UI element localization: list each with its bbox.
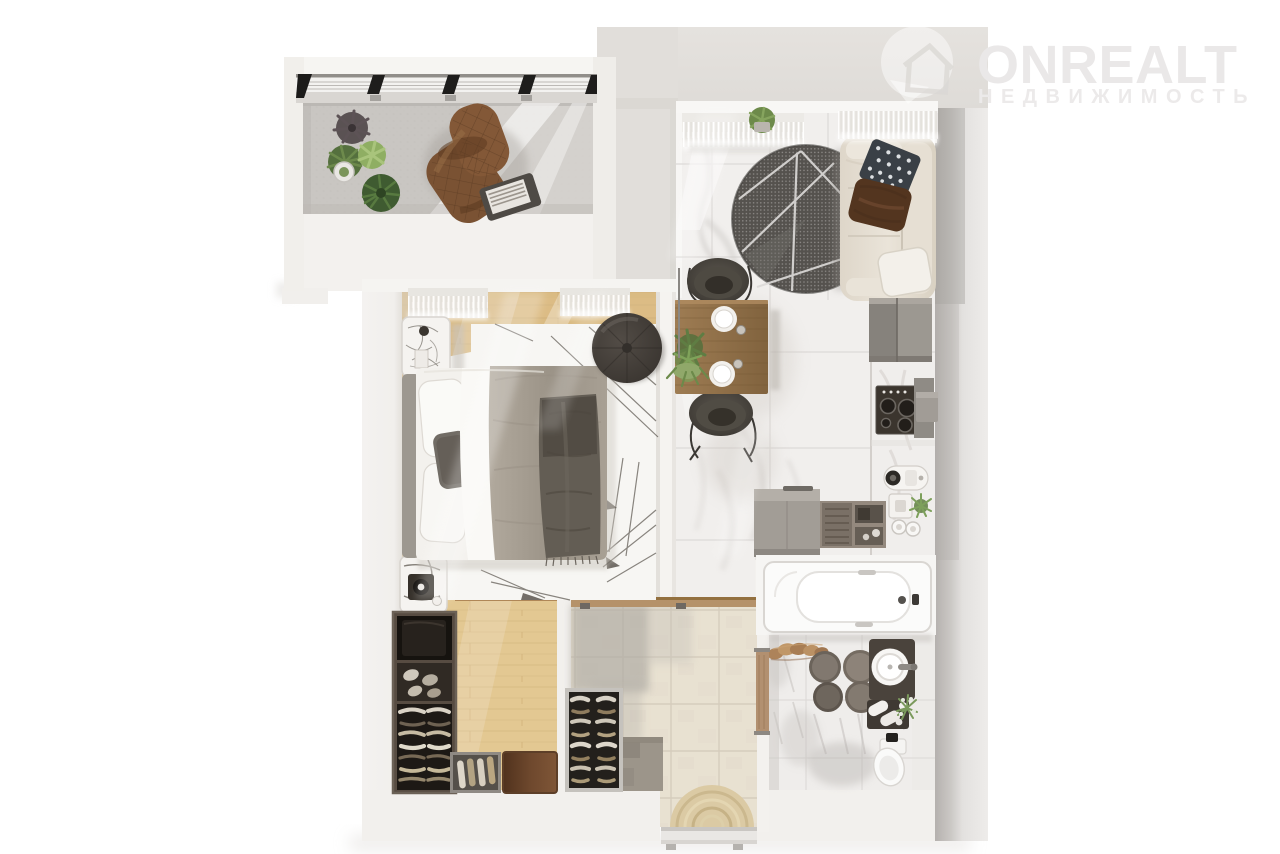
svg-text:НЕДВИЖИМОСТЬ: НЕДВИЖИМОСТЬ	[978, 86, 1256, 108]
